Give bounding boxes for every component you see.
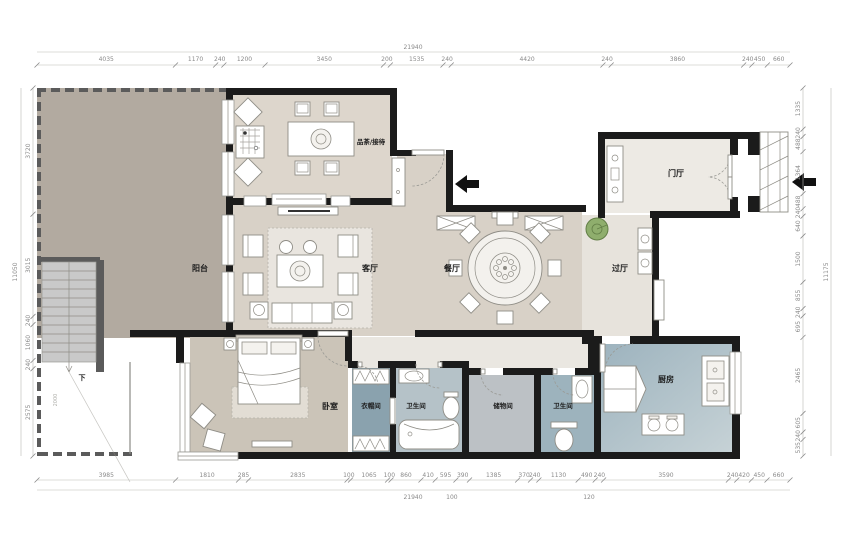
dim-value: 4035 (99, 56, 114, 63)
dim-value: 660 (773, 56, 785, 63)
dim-value: 390 (457, 472, 469, 479)
dim-value: 240 (601, 56, 613, 63)
room-label-bath1: 卫生间 (406, 401, 426, 410)
dim-value: 1335 (795, 101, 802, 116)
dim-value: 3590 (658, 472, 673, 479)
dim-value: 1130 (551, 472, 566, 479)
stair-dim-label: 2000 (53, 394, 59, 407)
dimension-chain-right: 1335240488136448824064015008552406952465… (795, 86, 806, 459)
toilet-icon (555, 429, 573, 451)
niche-cabinet (392, 158, 405, 206)
dim-total-left: 11050 (12, 262, 19, 281)
room-label-foyer: 门厅 (668, 168, 684, 178)
room-label-kitchen: 厨房 (658, 374, 674, 384)
room-label-hall: 过厅 (612, 263, 628, 273)
dim-value: 605 (795, 417, 802, 429)
dim-value: 1385 (486, 472, 501, 479)
floor-plan-canvas: 下 2000 (0, 0, 850, 540)
bench (252, 441, 292, 447)
dim-value: 240 (594, 472, 606, 479)
room-label-dining: 餐厅 (443, 263, 460, 273)
entry-exterior-hatch (760, 132, 788, 212)
armchair (243, 273, 263, 295)
dim-value: 240 (727, 472, 739, 479)
room-label-balcony: 阳台 (192, 263, 208, 273)
dim-value: 3985 (99, 472, 114, 479)
dim-value: 2575 (25, 405, 32, 420)
dim-value: 1535 (409, 56, 424, 63)
inner-entry-arrow-icon (455, 175, 479, 193)
armchair (338, 235, 358, 257)
dim-value: 3860 (670, 56, 685, 63)
stair-side-wall (96, 260, 104, 372)
room-label-bath2: 卫生间 (553, 401, 573, 410)
dim-value: 1810 (199, 472, 214, 479)
dim-value: 855 (795, 289, 802, 301)
dim-value: 240 (529, 472, 541, 479)
dimension-chain-left: 3720301524010602402575 (25, 86, 36, 459)
storage-floor (469, 375, 534, 452)
dim-value: 240 (795, 127, 802, 139)
dim-value: 488 (795, 195, 802, 207)
dim-value: 420 (738, 472, 750, 479)
dim-sub-value: 100 (446, 494, 458, 501)
dim-value: 535 (795, 442, 802, 454)
dim-value: 450 (754, 56, 766, 63)
room-label-cloak: 衣帽间 (361, 401, 381, 410)
dim-value: 3450 (317, 56, 332, 63)
dim-value: 240 (742, 56, 754, 63)
pouf (280, 241, 293, 254)
dim-value: 3720 (25, 143, 32, 158)
room-label-bedroom: 卧室 (322, 401, 338, 411)
dim-value: 100 (384, 472, 396, 479)
dim-value: 1500 (795, 251, 802, 266)
dim-value: 240 (441, 56, 453, 63)
dim-value: 1170 (188, 56, 203, 63)
dim-value: 640 (795, 220, 802, 232)
floor-plan-drawing: 下 2000 (0, 0, 850, 540)
room-label-storage: 储物间 (492, 401, 513, 410)
dim-value: 1065 (361, 472, 376, 479)
dim-value: 595 (440, 472, 452, 479)
dim-value: 1364 (795, 165, 802, 180)
dim-value: 240 (795, 207, 802, 219)
washer-icon (638, 252, 652, 274)
dim-value: 488 (795, 138, 802, 150)
room-label-tea: 品茶/接待 (357, 137, 386, 146)
armchair (338, 273, 358, 295)
dim-value: 240 (214, 56, 226, 63)
room-label-living: 客厅 (361, 263, 378, 273)
dim-value: 3015 (25, 257, 32, 272)
dim-total-right: 11175 (823, 262, 830, 281)
dim-total-top: 21940 (403, 44, 422, 51)
dining-table (468, 231, 542, 305)
dim-value: 860 (400, 472, 412, 479)
dim-value: 1060 (25, 335, 32, 350)
dim-value: 450 (753, 472, 765, 479)
shoe-cabinet (607, 146, 623, 202)
dim-value: 240 (795, 306, 802, 318)
lounge-chair (203, 429, 225, 451)
dim-sub-value: 120 (583, 494, 595, 501)
dim-value: 410 (422, 472, 434, 479)
stairs-down-label: 下 (79, 374, 86, 382)
dim-value: 2835 (290, 472, 305, 479)
dim-value: 2465 (795, 368, 802, 383)
dim-value: 200 (381, 56, 393, 63)
dim-value: 660 (773, 472, 785, 479)
dimension-chain-top: 4035117024012003450200153524044202403860… (35, 56, 793, 68)
dim-value: 240 (795, 430, 802, 442)
pouf (304, 241, 317, 254)
dim-value: 100 (343, 472, 355, 479)
sofa (272, 303, 332, 323)
washer-icon (638, 228, 652, 250)
dim-total-bottom: 21940 (403, 494, 422, 501)
dim-value: 695 (795, 321, 802, 333)
toilet-icon (443, 397, 459, 419)
armchair (243, 235, 263, 257)
dim-value: 240 (25, 315, 32, 327)
dim-value: 4420 (519, 56, 534, 63)
dim-value: 240 (25, 359, 32, 371)
dim-value: 1200 (237, 56, 252, 63)
dim-value: 285 (238, 472, 250, 479)
kitchen-window (730, 352, 741, 414)
dim-value: 490 (581, 472, 593, 479)
